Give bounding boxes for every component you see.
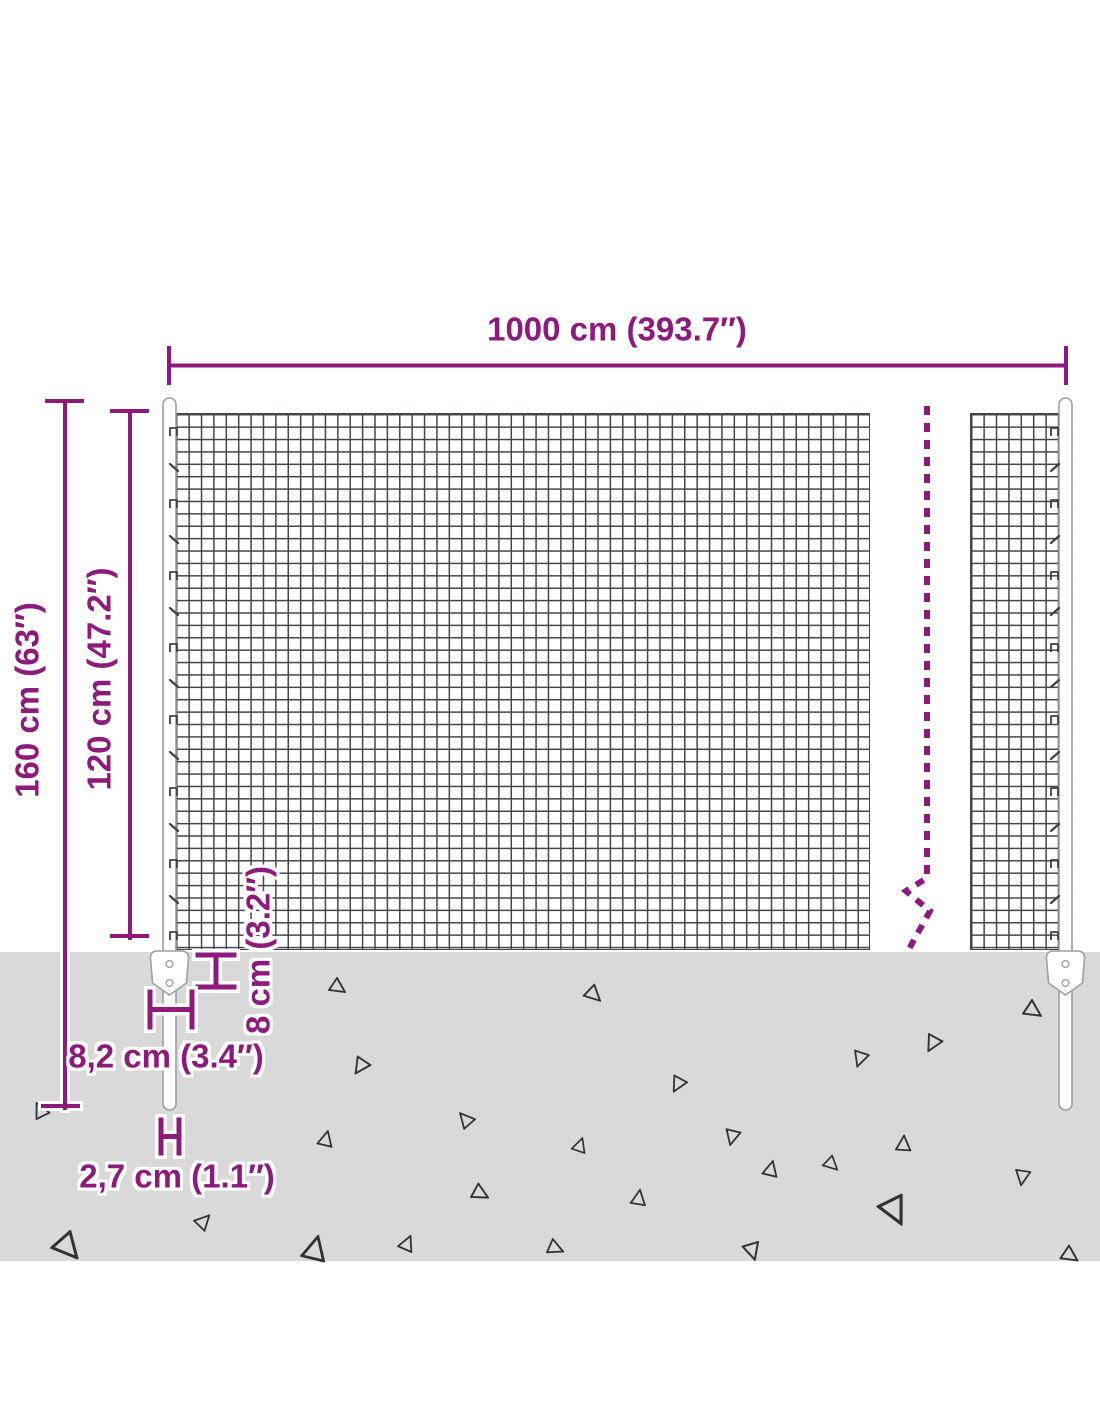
mesh-clip-icon [1051, 536, 1059, 543]
diagram-overlay [0, 0, 1100, 1422]
mesh-clip-icon [1051, 932, 1058, 940]
plate-hole-icon [166, 961, 173, 968]
fence-dimension-diagram: 1000 cm (393.7″) 160 cm (63″) 120 cm (47… [0, 0, 1100, 1422]
dimension-post-diameter-label: 2,7 cm (1.1″) [79, 1160, 275, 1193]
mesh-clip-icon [1051, 824, 1059, 831]
break-line [906, 406, 930, 949]
dimension-width-line [169, 348, 1066, 383]
mesh-clip-icon [1051, 572, 1058, 580]
dimension-anchor-width-label: 8,2 cm (3.4″) [68, 1040, 264, 1073]
fence-post-right [1059, 398, 1072, 1110]
dimension-anchor-depth-label: 8 cm (3.2″) [242, 866, 275, 1034]
plate-hole-icon [1062, 961, 1069, 968]
dimension-width-label: 1000 cm (393.7″) [487, 313, 747, 346]
mesh-clip-icon [1051, 428, 1058, 436]
mesh-clip-icon [1051, 716, 1058, 724]
mesh-clip-icon [1051, 680, 1059, 687]
plate-hole-icon [166, 980, 173, 987]
mesh-clip-icon [1051, 500, 1058, 508]
dimension-post-diameter-marker [161, 1120, 179, 1153]
dimension-mesh-height-label: 120 cm (47.2″) [83, 567, 116, 790]
plate-hole-icon [1062, 980, 1069, 987]
mesh-clip-icon [1051, 464, 1059, 471]
anchor-plate-right [1047, 951, 1085, 995]
dimension-total-height-label: 160 cm (63″) [11, 602, 44, 798]
dimension-anchor-depth-marker [198, 955, 234, 987]
mesh-clip-icon [1051, 608, 1059, 615]
mesh-clip-icon [1051, 860, 1058, 868]
mesh-clip-icon [1051, 644, 1058, 652]
mesh-clip-icon [1051, 896, 1059, 903]
anchor-plate-left [151, 951, 189, 995]
mesh-clip-icon [1051, 752, 1059, 759]
dimension-total-height-line [43, 401, 82, 1108]
mesh-clip-icon [1051, 788, 1058, 796]
